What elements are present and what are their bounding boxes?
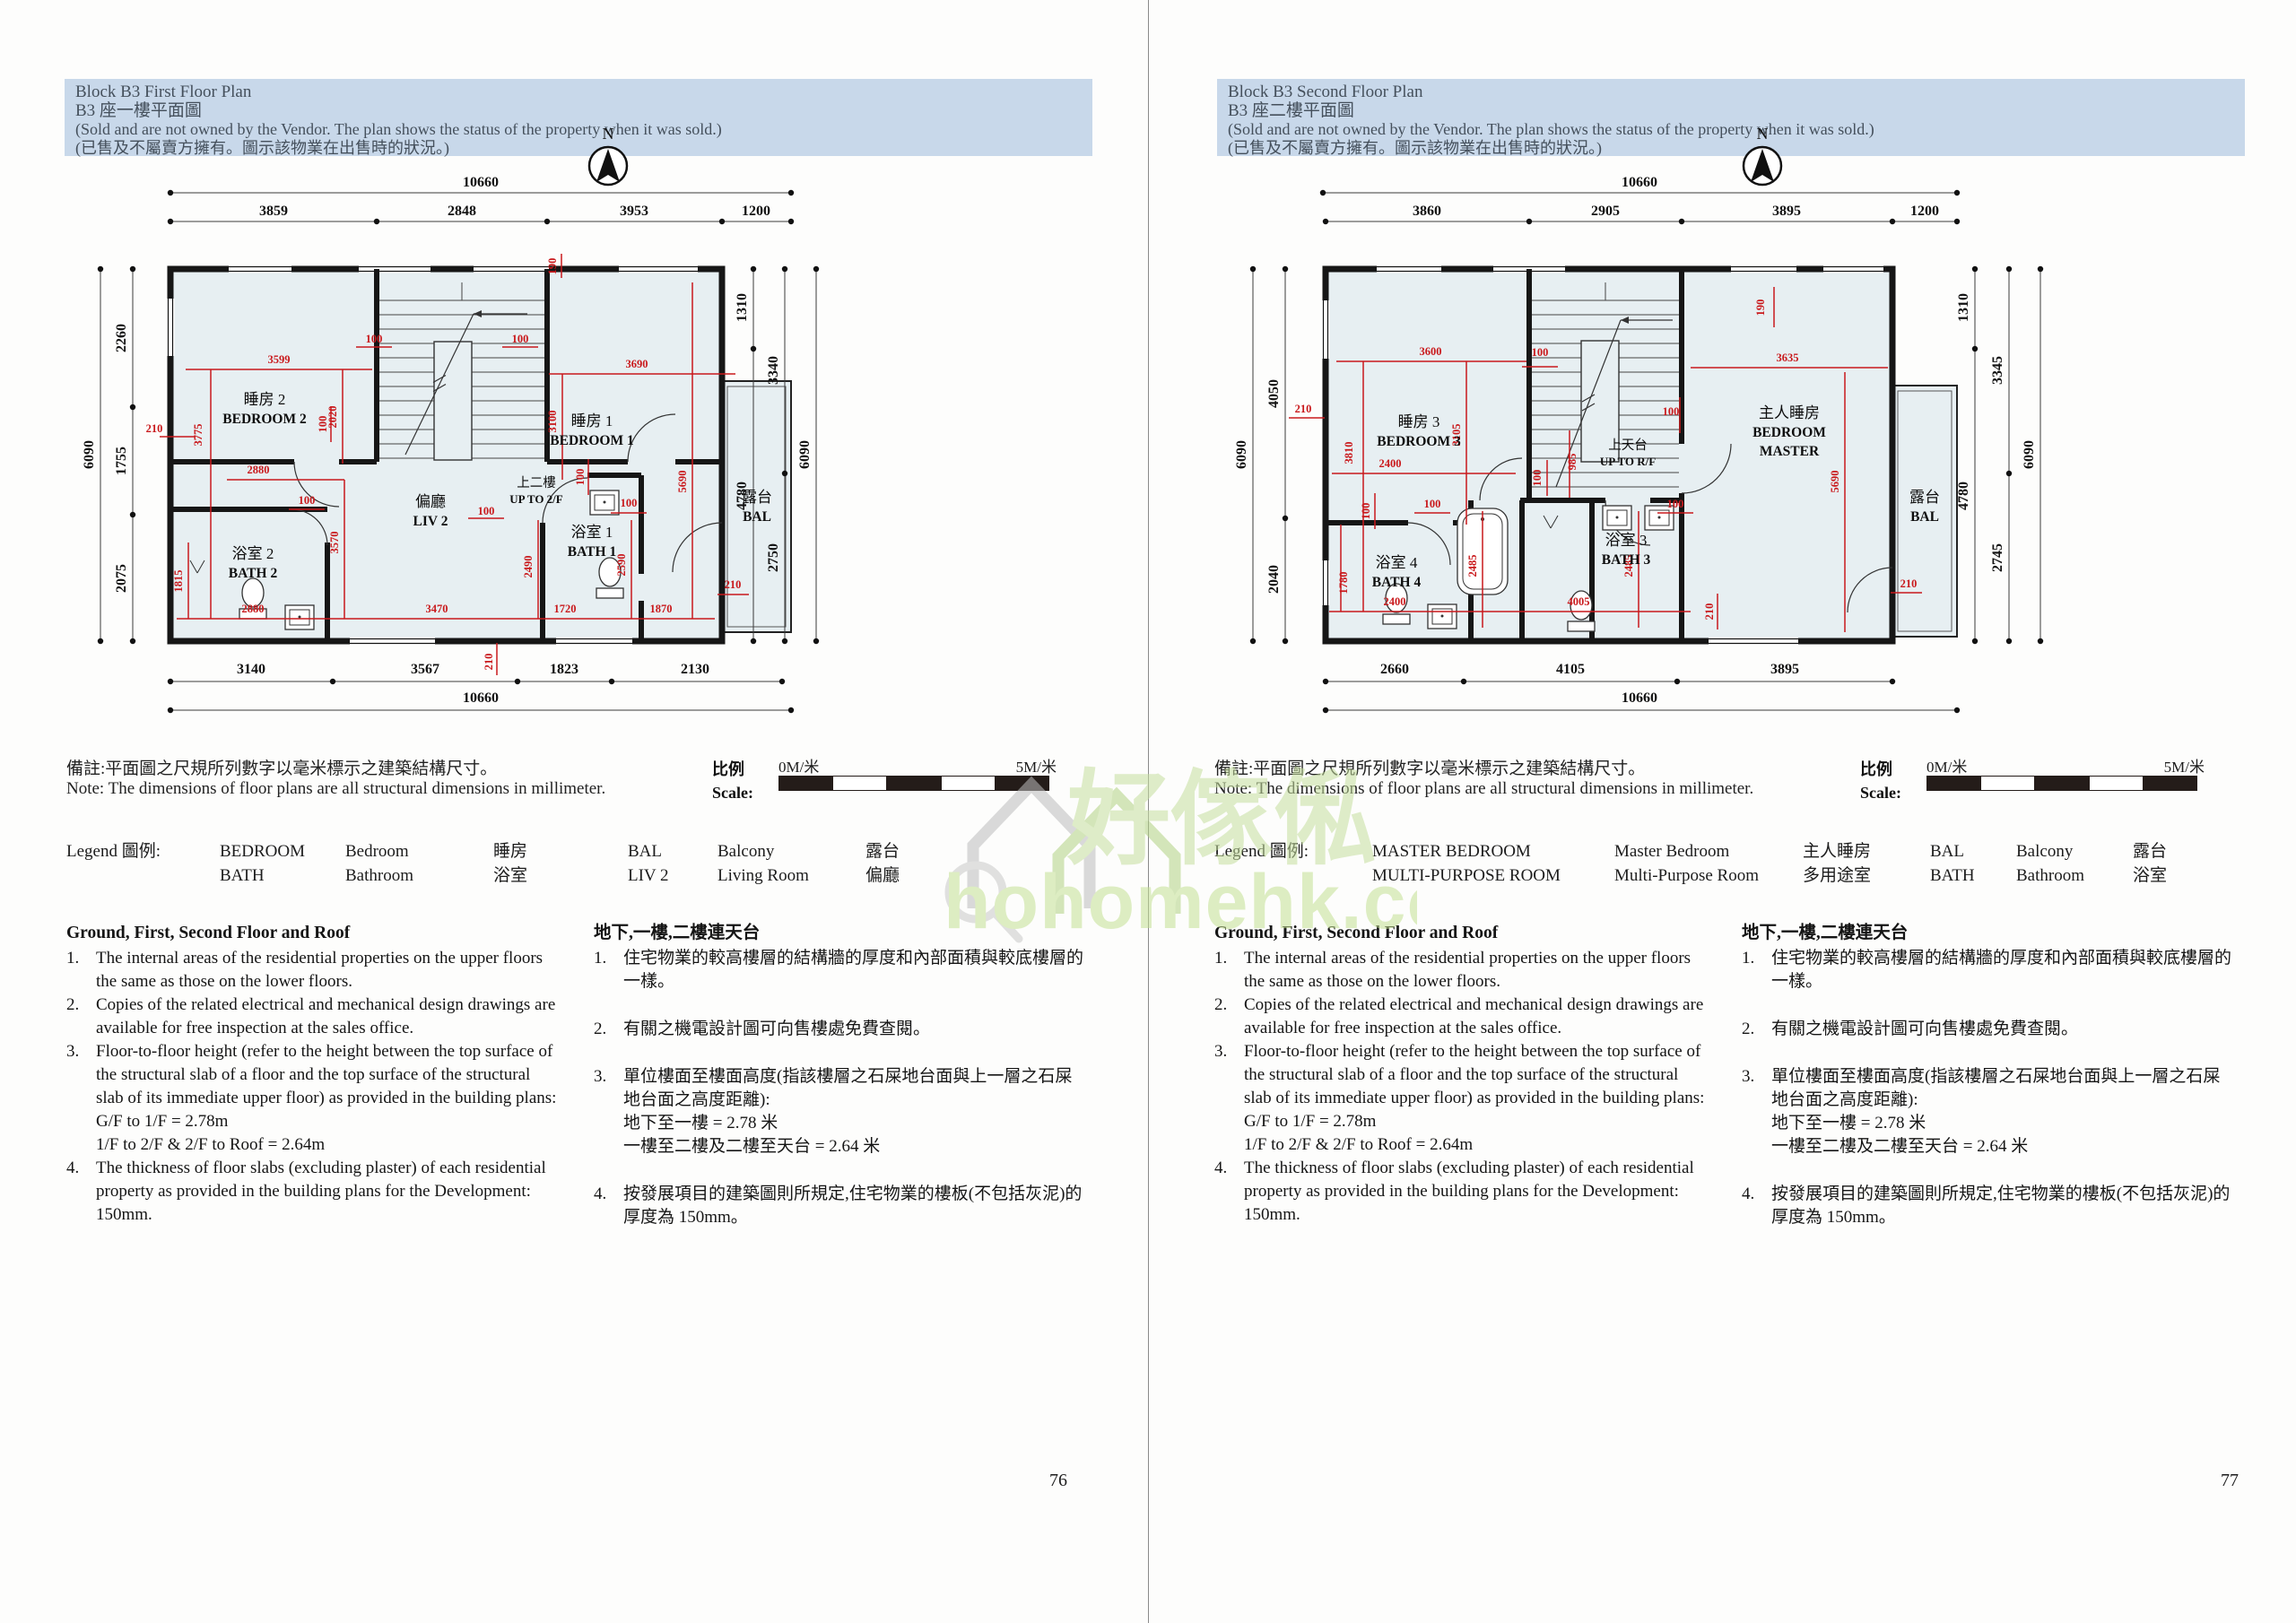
brochure-page-left: Block B3 First Floor Plan B3 座一樓平面圖 (Sol… [0,0,1148,1623]
room-label: 睡房 3 [1398,413,1440,430]
red-dim-label: 100 [1531,470,1544,487]
notes-title-zh: 地下,一樓,二樓連天台 [594,922,1089,945]
page-gutter-line [1148,0,1149,1623]
red-dim-label: 100 [1360,503,1372,520]
room-label: BATH 3 [1602,552,1651,568]
red-dim-label: 190 [1754,299,1767,317]
dim-label: 6090 [1234,440,1249,469]
page-number: 77 [2221,1471,2239,1491]
room-label: BATH 1 [568,544,616,560]
red-dim-label: 1870 [650,603,673,615]
scale-label: 比例 Scale: [1860,758,1901,804]
note-item: 1.The internal areas of the residential … [66,947,561,994]
scale-label-en: Scale: [712,781,753,804]
red-dim-label: 1780 [1337,572,1350,595]
legend-entry: MULTI-PURPOSE ROOM [1372,864,1614,888]
note-item: 3.Floor-to-floor height (refer to the he… [66,1040,561,1157]
page-number: 76 [1049,1471,1067,1491]
dim-label: 2260 [114,324,129,352]
note-item: 4.按發展項目的建築圖則所規定,住宅物業的樓板(不包括灰泥)的厚度為 150mm… [1742,1183,2237,1229]
scale-end: 5M/米 [2164,754,2205,777]
dim-label: 2750 [766,543,781,572]
legend-entry: LIV 2 [628,864,717,888]
legend-entry: 露台 [2133,839,2213,864]
plan-header: Block B3 Second Floor Plan B3 座二樓平面圖 (So… [1217,79,2245,156]
room-label: BEDROOM 2 [222,412,307,427]
floor-plan-first-floor: 1066038592848395312002260175520756090131… [54,166,915,749]
note-item: 3.單位樓面至樓面高度(指該樓層之石屎地台面與上一層之石屎地台面之高度距離): … [1742,1065,2237,1159]
dim-label: 2040 [1266,565,1282,594]
red-dim-label: 2880 [242,603,265,615]
dimension-note-en: Note: The dimensions of floor plans are … [1214,779,1753,799]
legend-entry: 主人睡房 [1803,839,1930,864]
red-dim-label: 1720 [554,603,577,615]
dim-label: 6090 [797,440,813,469]
scale-label-en: Scale: [1860,781,1901,804]
dim-label: 3860 [1413,204,1441,219]
note-item: 2.Copies of the related electrical and m… [66,994,561,1040]
notes-chinese: 地下,一樓,二樓連天台 1.住宅物業的較高樓層的結構牆的厚度和內部面積與較底樓層… [594,922,1089,1254]
room-label: 浴室 1 [571,524,613,541]
dim-label: 1200 [742,204,770,219]
dim-label: 10660 [1622,690,1657,706]
red-dim-label: 100 [1532,346,1549,359]
legend-entry: BAL [628,839,717,864]
dimension-note-en: Note: The dimensions of floor plans are … [66,779,605,799]
legend-entry: MASTER BEDROOM [1372,839,1614,864]
red-dim-label: 3810 [1343,442,1355,464]
room-label: BATH 2 [229,566,278,581]
red-dim-label: 5690 [676,471,689,493]
red-dim-label: 210 [483,654,495,671]
red-dim-label: 210 [1900,577,1918,590]
scale-label: 比例 Scale: [712,758,753,804]
dim-label: 2660 [1380,662,1409,677]
room-label: MASTER [1760,444,1820,459]
red-dim-label: 210 [725,578,742,591]
dim-label: 3859 [259,204,288,219]
dim-label: 4105 [1556,662,1585,677]
red-dim-label: 2400 [1384,595,1406,608]
red-dim-label: 4005 [1568,595,1590,608]
scale-start: 0M/米 [778,754,819,777]
dim-label: 10660 [1622,175,1657,190]
dim-label: 10660 [463,690,499,706]
room-label: BAL [743,509,771,525]
dim-label: 2905 [1591,204,1620,219]
legend-entry: Master Bedroom [1614,839,1803,864]
legend-entry: 浴室 [493,864,628,888]
red-dim-label: 100 [1663,405,1680,418]
dim-label: 1310 [1956,293,1971,322]
room-label: 露台 [742,489,772,506]
red-dim-label: 3775 [192,424,204,447]
legend-entry: Bathroom [345,864,493,888]
dim-label: 2745 [1990,543,2005,572]
legend-entry: Living Room [717,864,865,888]
red-dim-label: 2880 [248,464,270,476]
dimension-note-zh: 備註:平面圖之尺規所列數字以毫米標示之建築結構尺寸。 [1214,755,1645,779]
legend-entry: 浴室 [2133,864,2213,888]
scale-bar: 0M/米 5M/米 [778,754,1048,799]
notes-title-en: Ground, First, Second Floor and Roof [66,922,561,945]
sold-note-zh: (已售及不屬賣方擁有。圖示該物業在出售時的狀況。) [1228,139,2245,158]
scale-start: 0M/米 [1926,754,1967,777]
red-dim-label: 2400 [1379,457,1402,470]
note-item: 3.單位樓面至樓面高度(指該樓層之石屎地台面與上一層之石屎地台面之高度距離): … [594,1065,1089,1159]
dim-label: 1200 [1910,204,1939,219]
red-dim-label: 3100 [546,411,559,433]
scale-bar-segments [1926,776,2197,791]
red-dim-label: 210 [1295,403,1312,415]
room-label: BATH 4 [1372,575,1422,590]
red-dim-label: 3470 [426,603,448,615]
note-item: 4.The thickness of floor slabs (excludin… [1214,1157,1709,1227]
room-label: 睡房 1 [571,412,613,430]
red-dim-label: 100 [574,469,587,486]
floor-plan-second-floor: 1066038602905389512004050204060901310478… [1206,166,2067,749]
room-label: UP TO 2/F [509,492,563,506]
room-label: BAL [1910,509,1939,525]
legend-label: Legend 圖例: [66,839,161,864]
note-item: 1.住宅物業的較高樓層的結構牆的厚度和內部面積與較底樓層的一樣。 [1742,947,2237,994]
dim-label: 2848 [448,204,476,219]
dim-label: 2075 [114,564,129,593]
legend-entry: BATH [220,864,345,888]
dim-label: 3340 [766,356,781,385]
room-label: 上二樓 [517,475,556,490]
dim-label: 1823 [550,662,578,677]
scale-bar-segments [778,776,1049,791]
plan-title-en: Block B3 First Floor Plan [75,83,1092,102]
red-dim-label: 210 [1703,603,1716,621]
red-dim-label: 3690 [626,358,648,370]
plan-title-zh: B3 座二樓平面圖 [1228,102,2245,121]
dim-label: 3895 [1770,662,1799,677]
room-label: LIV 2 [413,514,448,529]
room-label: 浴室 3 [1605,532,1648,549]
dim-label: 6090 [2022,440,2037,469]
legend-entries: BEDROOMBedroom睡房BALBalcony露台BATHBathroom… [220,839,946,888]
legend-entry: Multi-Purpose Room [1614,864,1803,888]
room-label: 上天台 [1608,438,1648,453]
note-item: 4.按發展項目的建築圖則所規定,住宅物業的樓板(不包括灰泥)的厚度為 150mm… [594,1183,1089,1229]
room-label: 主人睡房 [1759,404,1820,421]
dim-label: 6090 [82,440,97,469]
legend-entry: 偏廳 [865,864,946,888]
red-dim-label: 100 [1424,498,1441,510]
scale-label-zh: 比例 [1860,758,1901,781]
legend-entry: Bathroom [2016,864,2133,888]
note-item: 3.Floor-to-floor height (refer to the he… [1214,1040,1709,1157]
dim-label: 3895 [1772,204,1801,219]
red-dim-label: 1815 [172,570,185,593]
plan-title-zh: B3 座一樓平面圖 [75,102,1092,121]
note-item: 2.有關之機電設計圖可向售樓處免費查閱。 [594,1018,1089,1041]
dim-label: 2130 [681,662,709,677]
red-dim-label: 100 [366,333,383,345]
room-label: 浴室 4 [1376,554,1418,571]
legend-entry: Balcony [717,839,865,864]
notes-english: Ground, First, Second Floor and Roof 1.T… [1214,922,1709,1227]
note-item: 4.The thickness of floor slabs (excludin… [66,1157,561,1227]
notes-title-en: Ground, First, Second Floor and Roof [1214,922,1709,945]
note-item: 1.住宅物業的較高樓層的結構牆的厚度和內部面積與較底樓層的一樣。 [594,947,1089,994]
compass-n-label: N [583,126,633,142]
red-dim-label: 2490 [522,556,535,578]
red-dim-label: 100 [299,494,316,507]
sold-note-en: (Sold and are not owned by the Vendor. T… [1228,120,2245,139]
red-dim-label: 3600 [1420,345,1442,358]
red-dim-label: 3570 [328,532,341,554]
legend-label: Legend 圖例: [1214,839,1309,864]
dim-label: 3345 [1990,356,2005,385]
red-dim-label: 5690 [1829,471,1841,493]
compass-n-label: N [1737,126,1787,142]
dim-label: 4050 [1266,379,1282,408]
notes-title-zh: 地下,一樓,二樓連天台 [1742,922,2237,945]
room-label: 露台 [1909,489,1940,506]
legend-entry: BEDROOM [220,839,345,864]
legend-entry: Bedroom [345,839,493,864]
dim-label: 1310 [735,293,750,322]
red-dim-label: 190 [546,258,559,275]
legend-entries: MASTER BEDROOMMaster Bedroom主人睡房BALBalco… [1372,839,2213,888]
scale-end: 5M/米 [1016,754,1057,777]
notes-english: Ground, First, Second Floor and Roof 1.T… [66,922,561,1227]
red-dim-label: 100 [512,333,529,345]
room-label: BEDROOM 1 [550,433,633,448]
room-label: BEDROOM 3 [1377,434,1461,449]
red-dim-label: 100 [478,505,495,517]
scale-label-zh: 比例 [712,758,753,781]
brochure-page-right: Block B3 Second Floor Plan B3 座二樓平面圖 (So… [1148,0,2296,1623]
dim-label: 4780 [1956,482,1971,510]
room-label: 睡房 2 [244,391,286,408]
red-dim-label: 2485 [1466,555,1479,577]
note-item: 2.有關之機電設計圖可向售樓處免費查閱。 [1742,1018,2237,1041]
legend-entry: 多用途室 [1803,864,1930,888]
red-dim-label: 3599 [268,353,291,366]
dim-label: 1755 [114,447,129,475]
red-dim-label: 100 [317,416,329,433]
legend-entry: 睡房 [493,839,628,864]
note-item: 2.Copies of the related electrical and m… [1214,994,1709,1040]
dim-label: 3140 [237,662,265,677]
dimension-note-zh: 備註:平面圖之尺規所列數字以毫米標示之建築結構尺寸。 [66,755,497,779]
red-dim-label: 210 [146,422,163,435]
room-label: 浴室 2 [232,545,274,562]
plan-title-en: Block B3 Second Floor Plan [1228,83,2245,102]
room-label: BEDROOM [1752,425,1826,440]
note-item: 1.The internal areas of the residential … [1214,947,1709,994]
room-label: 偏廳 [415,493,446,510]
dim-label: 3953 [620,204,648,219]
legend-entry: BAL [1930,839,2016,864]
red-dim-label: 985 [1566,454,1578,471]
red-dim-label: 100 [621,497,638,509]
red-dim-label: 100 [1667,498,1684,510]
legend-entry: 露台 [865,839,946,864]
legend-entry: Balcony [2016,839,2133,864]
dim-label: 10660 [463,175,499,190]
dim-label: 3567 [411,662,439,677]
legend-entry: BATH [1930,864,2016,888]
red-dim-label: 2590 [615,554,628,577]
plan-header: Block B3 First Floor Plan B3 座一樓平面圖 (Sol… [65,79,1092,156]
notes-chinese: 地下,一樓,二樓連天台 1.住宅物業的較高樓層的結構牆的厚度和內部面積與較底樓層… [1742,922,2237,1254]
room-label: UP TO R/F [1600,455,1656,468]
scale-bar: 0M/米 5M/米 [1926,754,2196,799]
red-dim-label: 3635 [1777,352,1799,364]
